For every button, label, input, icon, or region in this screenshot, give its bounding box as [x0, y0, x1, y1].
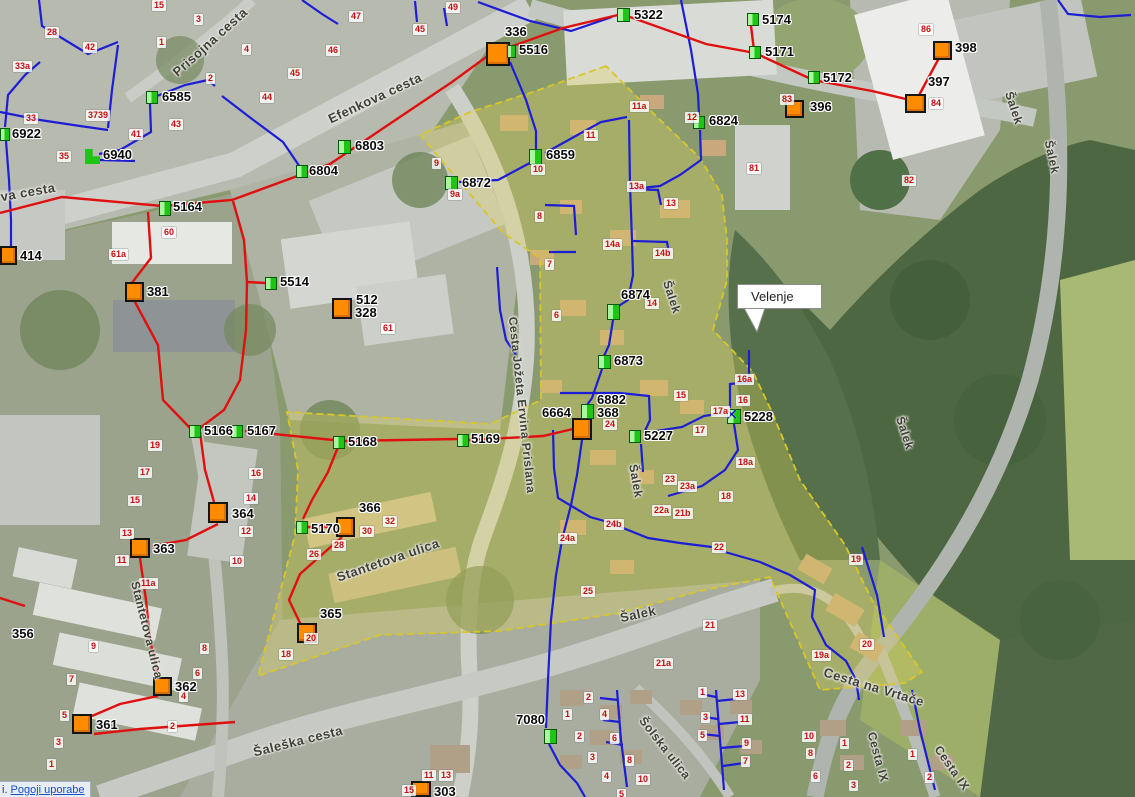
- house-number-label: 4: [242, 44, 251, 55]
- house-number-label: 13: [120, 528, 134, 539]
- house-number-label: 2: [925, 772, 934, 783]
- marker-id-label: 303: [434, 784, 456, 797]
- house-number-label: 11: [422, 770, 436, 781]
- house-number-label: 11: [738, 714, 752, 725]
- marker-id-label: 5516: [519, 42, 548, 57]
- house-number-label: 19a: [812, 650, 831, 661]
- house-number-label: 47: [349, 11, 363, 22]
- house-number-label: 9: [89, 641, 98, 652]
- house-number-label: 2: [168, 721, 177, 732]
- house-number-label: 16: [249, 468, 263, 479]
- house-number-label: 9a: [448, 189, 462, 200]
- house-number-label: 1: [840, 738, 849, 749]
- house-number-label: 14b: [653, 248, 673, 259]
- marker-id-label: 356: [12, 626, 34, 641]
- house-number-label: 19: [148, 440, 162, 451]
- marker-id-label: 5228: [744, 409, 773, 424]
- house-number-label: 6: [610, 733, 619, 744]
- marker-id-label: 5171: [765, 44, 794, 59]
- marker-id-label: 6859: [546, 147, 575, 162]
- marker-id-label: 7080: [516, 712, 545, 727]
- house-number-label: 1: [157, 37, 166, 48]
- marker-id-label: 6824: [709, 113, 738, 128]
- house-number-label: 46: [326, 45, 340, 56]
- house-number-label: 3: [194, 14, 203, 25]
- house-number-label: 5: [617, 789, 626, 797]
- house-number-label: 45: [288, 68, 302, 79]
- house-number-label: 10: [531, 164, 545, 175]
- marker-id-label: 6940: [103, 147, 132, 162]
- house-number-label: 6: [193, 668, 202, 679]
- house-number-label: 16: [736, 395, 750, 406]
- street-name-label: Cesta IX: [932, 743, 973, 793]
- house-number-label: 13: [733, 689, 747, 700]
- street-name-label: Stantetova ulica: [335, 535, 442, 584]
- house-number-label: 7: [545, 259, 554, 270]
- street-name-label: Šaleška cesta: [252, 723, 345, 760]
- house-number-label: 45: [413, 24, 427, 35]
- house-number-label: 17a: [711, 406, 730, 417]
- marker-id-label: 365: [320, 606, 342, 621]
- house-number-label: 11: [584, 130, 598, 141]
- street-name-label: Cesta Jožeta Ervina Prislana: [506, 316, 538, 494]
- house-number-label: 28: [332, 540, 346, 551]
- house-number-label: 4: [602, 771, 611, 782]
- house-number-label: 61a: [109, 249, 128, 260]
- map-canvas[interactable]: ✕ 284233a3337393541431324444515474649456…: [0, 0, 1135, 797]
- house-number-label: 3: [849, 780, 858, 791]
- house-number-label: 30: [360, 526, 374, 537]
- house-number-label: 8: [535, 211, 544, 222]
- house-number-label: 15: [402, 785, 416, 796]
- house-number-label: 1: [908, 749, 917, 760]
- house-number-label: 7: [67, 674, 76, 685]
- house-number-label: 49: [446, 2, 460, 13]
- house-number-label: 25: [581, 586, 595, 597]
- house-number-label: 9: [742, 738, 751, 749]
- house-number-label: 33: [24, 113, 38, 124]
- house-number-label: 6: [552, 310, 561, 321]
- house-number-label: 17: [693, 425, 707, 436]
- street-name-label: Cesta na Vrtače: [822, 665, 926, 710]
- house-number-label: 22: [712, 542, 726, 553]
- house-number-label: 84: [929, 98, 943, 109]
- house-number-label: 2: [575, 731, 584, 742]
- house-number-label: 9: [432, 158, 441, 169]
- marker-id-label: 381: [147, 284, 169, 299]
- house-number-label: 15: [128, 495, 142, 506]
- marker-id-label: 6585: [162, 89, 191, 104]
- house-number-label: 20: [860, 639, 874, 650]
- marker-id-label: 398: [955, 40, 977, 55]
- marker-id-label: 5174: [762, 12, 791, 27]
- house-number-label: 17: [138, 467, 152, 478]
- callout-text: Velenje: [751, 289, 794, 304]
- marker-id-label: 5166: [204, 423, 233, 438]
- house-number-label: 83: [780, 94, 794, 105]
- house-number-label: 3: [54, 737, 63, 748]
- house-number-label: 14: [244, 493, 258, 504]
- marker-id-label: 6664: [542, 405, 571, 420]
- house-number-label: 10: [636, 774, 650, 785]
- marker-id-label: 5514: [280, 274, 309, 289]
- street-name-label: Cesta IX: [865, 730, 892, 783]
- street-name-label: Prisojna cesta: [170, 5, 251, 80]
- house-number-label: 3: [588, 752, 597, 763]
- house-number-label: 19: [849, 554, 863, 565]
- marker-id-label: 5164: [173, 199, 202, 214]
- street-name-label: Efenkova cesta: [326, 70, 424, 127]
- house-number-label: 21a: [654, 658, 673, 669]
- house-number-label: 41: [129, 129, 143, 140]
- marker-id-label: 6803: [355, 138, 384, 153]
- marker-id-label: 5172: [823, 70, 852, 85]
- house-number-label: 1: [47, 759, 56, 770]
- house-number-label: 12: [239, 526, 253, 537]
- house-number-label: 24b: [604, 519, 624, 530]
- house-number-label: 5: [698, 730, 707, 741]
- labels-layer: 284233a333739354143132444451547464945606…: [0, 0, 1135, 797]
- search-result-callout: Velenje: [737, 284, 822, 309]
- marker-id-label: 6922: [12, 126, 41, 141]
- terms-link[interactable]: Pogoji uporabe: [11, 784, 85, 796]
- street-name-label: Šolska ulica: [636, 714, 693, 782]
- house-number-label: 21: [703, 620, 717, 631]
- street-name-label: Stantetova ulica: [128, 580, 166, 680]
- house-number-label: 60: [162, 227, 176, 238]
- house-number-label: 43: [169, 119, 183, 130]
- house-number-label: 11: [115, 555, 129, 566]
- marker-id-label: 5167: [247, 423, 276, 438]
- house-number-label: 13a: [627, 181, 646, 192]
- house-number-label: 28: [45, 27, 59, 38]
- house-number-label: 81: [747, 163, 761, 174]
- house-number-label: 35: [57, 151, 71, 162]
- house-number-label: 2: [206, 73, 215, 84]
- house-number-label: 86: [919, 24, 933, 35]
- street-name-label: Šalek: [1002, 90, 1026, 127]
- house-number-label: 24a: [558, 533, 577, 544]
- house-number-label: 1: [698, 687, 707, 698]
- attribution-prefix: i.: [2, 784, 8, 796]
- marker-id-label: 366: [359, 500, 381, 515]
- house-number-label: 22a: [652, 505, 671, 516]
- marker-id-label: 6804: [309, 163, 338, 178]
- marker-id-label: 336: [505, 24, 527, 39]
- house-number-label: 10: [230, 556, 244, 567]
- house-number-label: 2: [844, 760, 853, 771]
- marker-id-label: 397: [928, 74, 950, 89]
- marker-id-label: 6872: [462, 175, 491, 190]
- house-number-label: 4: [600, 709, 609, 720]
- house-number-label: 26: [307, 549, 321, 560]
- street-name-label: Šalek: [626, 463, 646, 499]
- house-number-label: 13: [664, 198, 678, 209]
- house-number-label: 5: [60, 710, 69, 721]
- house-number-label: 13: [439, 770, 453, 781]
- house-number-label: 12: [685, 112, 699, 123]
- house-number-label: 32: [383, 516, 397, 527]
- house-number-label: 11a: [630, 101, 649, 112]
- marker-id-label: 5168: [348, 434, 377, 449]
- marker-id-label: 6874: [621, 287, 650, 302]
- house-number-label: 8: [625, 755, 634, 766]
- marker-id-label: 363: [153, 541, 175, 556]
- house-number-label: 2: [584, 692, 593, 703]
- house-number-label: 15: [152, 0, 166, 11]
- street-name-label: va cesta: [0, 180, 57, 204]
- marker-id-label: 5227: [644, 428, 673, 443]
- house-number-label: 10: [802, 731, 816, 742]
- house-number-label: 23a: [678, 481, 697, 492]
- marker-id-label: 5170: [311, 521, 340, 536]
- house-number-label: 33a: [13, 61, 32, 72]
- house-number-label: 61: [381, 323, 395, 334]
- house-number-label: 6: [811, 771, 820, 782]
- marker-id-label: 5169: [471, 431, 500, 446]
- house-number-label: 18a: [736, 457, 755, 468]
- house-number-label: 8: [200, 643, 209, 654]
- house-number-label: 21b: [673, 508, 693, 519]
- house-number-label: 8: [806, 748, 815, 759]
- marker-id-label: 362: [175, 679, 197, 694]
- house-number-label: 3: [701, 712, 710, 723]
- marker-id-label: 5322: [634, 7, 663, 22]
- street-name-label: Šalek: [660, 279, 684, 316]
- house-number-label: 20: [304, 633, 318, 644]
- house-number-label: 16a: [735, 374, 754, 385]
- house-number-label: 1: [563, 709, 572, 720]
- marker-id-label: 414: [20, 248, 42, 263]
- street-name-label: Šalek: [619, 603, 658, 625]
- marker-id-label: 6873: [614, 353, 643, 368]
- attribution-bar: i. Pogoji uporabe: [0, 781, 91, 797]
- house-number-label: 23: [663, 474, 677, 485]
- house-number-label: 7: [741, 756, 750, 767]
- house-number-label: 18: [279, 649, 293, 660]
- street-name-label: Šalek: [1042, 139, 1063, 175]
- marker-id-label: 364: [232, 506, 254, 521]
- marker-id-label: 328: [355, 305, 377, 320]
- house-number-label: 14a: [603, 239, 622, 250]
- house-number-label: 82: [902, 175, 916, 186]
- house-number-label: 15: [674, 390, 688, 401]
- house-number-label: 44: [260, 92, 274, 103]
- house-number-label: 18: [719, 491, 733, 502]
- house-number-label: 42: [83, 42, 97, 53]
- house-number-label: 3739: [86, 110, 110, 121]
- house-number-label: 24: [603, 419, 617, 430]
- street-name-label: Šalek: [893, 415, 917, 452]
- marker-id-label: 361: [96, 717, 118, 732]
- marker-id-label: 396: [810, 99, 832, 114]
- marker-id-label: 368: [597, 405, 619, 420]
